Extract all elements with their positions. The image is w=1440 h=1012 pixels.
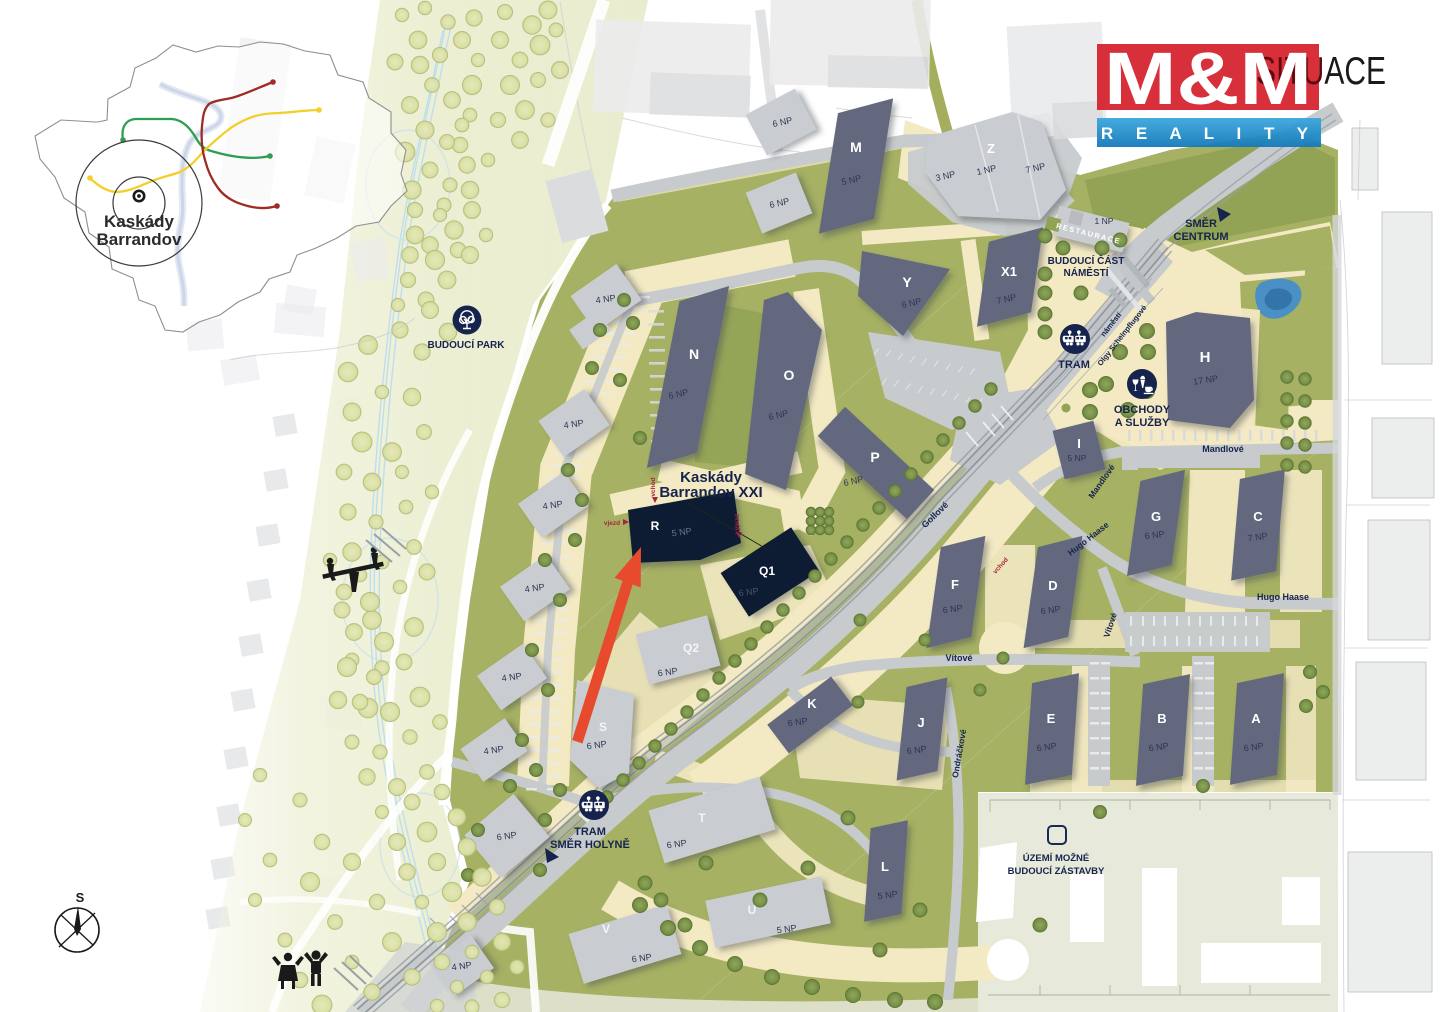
svg-text:ÚZEMÍ MOŽNÉ: ÚZEMÍ MOŽNÉ	[1023, 852, 1090, 864]
svg-text:J: J	[917, 715, 924, 730]
svg-text:BUDOUCÍ ZÁSTAVBY: BUDOUCÍ ZÁSTAVBY	[1008, 866, 1105, 877]
svg-text:X1: X1	[1001, 264, 1017, 279]
svg-text:B: B	[1157, 711, 1166, 726]
svg-text:Z: Z	[987, 141, 995, 156]
svg-text:vchod: vchod	[650, 477, 657, 496]
svg-text:E: E	[1047, 711, 1056, 726]
svg-text:BUDOUCÍ PARK: BUDOUCÍ PARK	[427, 338, 505, 351]
svg-text:TRAM: TRAM	[1058, 359, 1090, 371]
svg-text:Q2: Q2	[683, 641, 699, 655]
svg-text:C: C	[1253, 509, 1263, 524]
svg-text:O: O	[784, 367, 795, 383]
svg-text:OBCHODY: OBCHODY	[1114, 404, 1171, 416]
svg-text:G: G	[1151, 509, 1161, 524]
svg-text:Barrandov XXI: Barrandov XXI	[659, 484, 762, 501]
svg-text:Mandlové: Mandlové	[1202, 444, 1244, 454]
svg-text:F: F	[951, 577, 959, 592]
svg-text:5 NP: 5 NP	[1068, 453, 1087, 463]
svg-text:T: T	[698, 811, 706, 825]
svg-text:Vítové: Vítové	[945, 653, 972, 663]
svg-text:SMĚR: SMĚR	[1185, 217, 1217, 230]
svg-text:N: N	[689, 346, 699, 362]
svg-text:Q1: Q1	[759, 564, 775, 578]
svg-text:NÁMĚSTÍ: NÁMĚSTÍ	[1064, 266, 1109, 279]
svg-text:A SLUŽBY: A SLUŽBY	[1115, 416, 1170, 429]
svg-text:M: M	[850, 139, 862, 155]
svg-text:CENTRUM: CENTRUM	[1174, 231, 1229, 243]
svg-text:P: P	[870, 449, 879, 465]
svg-text:H: H	[1200, 349, 1211, 366]
svg-text:R E A L I T Y: R E A L I T Y	[1101, 124, 1317, 143]
svg-text:R: R	[651, 519, 660, 533]
svg-text:Y: Y	[902, 274, 912, 290]
svg-text:S: S	[599, 720, 607, 734]
svg-text:TRAM: TRAM	[574, 826, 606, 838]
svg-text:V: V	[602, 922, 610, 936]
svg-text:I: I	[1077, 436, 1081, 451]
svg-text:D: D	[1048, 578, 1057, 593]
svg-text:K: K	[807, 696, 817, 711]
svg-text:1 NP: 1 NP	[1095, 216, 1114, 226]
svg-text:SMĚR HOLYNĚ: SMĚR HOLYNĚ	[550, 838, 630, 851]
svg-text:S: S	[76, 890, 85, 905]
svg-text:A: A	[1251, 711, 1261, 726]
svg-text:Barrandov: Barrandov	[96, 230, 182, 249]
svg-text:Hugo Haase: Hugo Haase	[1257, 592, 1309, 602]
svg-text:BUDOUCÍ ČÁST: BUDOUCÍ ČÁST	[1048, 254, 1125, 267]
svg-text:vjezd: vjezd	[604, 520, 620, 527]
svg-text:Kaskády: Kaskády	[104, 212, 174, 231]
svg-text:M&M: M&M	[1104, 37, 1312, 120]
svg-text:L: L	[881, 859, 889, 874]
svg-text:U: U	[748, 903, 757, 917]
